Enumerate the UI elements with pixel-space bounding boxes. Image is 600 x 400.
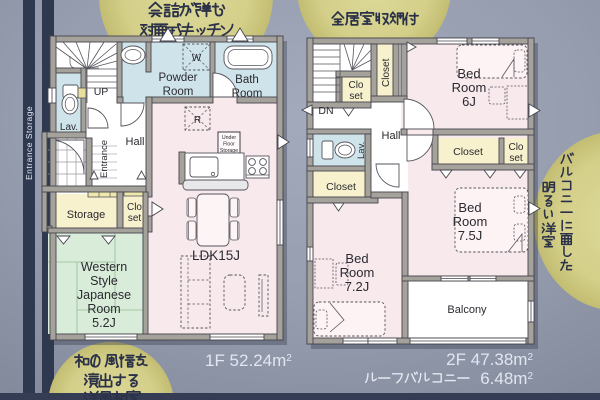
svg-text:2F 47.38m2: 2F 47.38m2: [446, 350, 533, 369]
svg-text:Closet: Closet: [381, 58, 392, 87]
svg-text:Room: Room: [87, 302, 120, 316]
svg-text:Hall: Hall: [126, 136, 145, 148]
svg-text:6J: 6J: [462, 94, 476, 109]
svg-text:Under: Under: [222, 135, 236, 141]
svg-text:Room: Room: [232, 88, 263, 100]
svg-text:Closet: Closet: [453, 146, 483, 158]
svg-text:W: W: [192, 53, 202, 64]
svg-text:Bed: Bed: [458, 200, 481, 215]
svg-text:Entrance: Entrance: [99, 140, 110, 178]
svg-text:7.2J: 7.2J: [345, 279, 370, 294]
svg-text:6.48m2: 6.48m2: [480, 369, 533, 388]
svg-text:UP: UP: [94, 86, 109, 98]
svg-text:Lav.: Lav.: [356, 142, 367, 159]
svg-text:Room: Room: [452, 80, 487, 95]
svg-text:Powder: Powder: [159, 72, 198, 84]
svg-text:Balcony: Balcony: [447, 304, 487, 316]
svg-text:Lav.: Lav.: [60, 122, 78, 133]
svg-text:Floor: Floor: [223, 142, 235, 148]
svg-text:Closet: Closet: [326, 181, 356, 193]
svg-text:7.5J: 7.5J: [458, 228, 483, 243]
svg-text:Entrance Storage: Entrance Storage: [24, 106, 34, 180]
svg-text:Clo: Clo: [348, 80, 363, 91]
svg-text:Room: Room: [163, 86, 194, 98]
svg-text:R: R: [194, 115, 201, 126]
svg-text:Western: Western: [81, 260, 127, 274]
svg-text:Style: Style: [90, 274, 118, 288]
svg-text:Japanese: Japanese: [77, 288, 131, 302]
svg-text:Storage: Storage: [67, 209, 106, 221]
svg-text:Bath: Bath: [235, 74, 259, 86]
svg-text:set: set: [128, 213, 142, 224]
svg-text:Room: Room: [340, 265, 375, 280]
svg-text:Bed: Bed: [457, 66, 480, 81]
svg-text:Bed: Bed: [345, 251, 368, 266]
svg-text:DN: DN: [318, 105, 333, 117]
svg-text:Hall: Hall: [382, 130, 401, 142]
svg-text:Clo: Clo: [508, 142, 523, 153]
svg-text:set: set: [509, 153, 523, 164]
svg-text:1F 52.24m2: 1F 52.24m2: [205, 351, 292, 370]
svg-text:set: set: [349, 91, 363, 102]
svg-text:5.2J: 5.2J: [92, 316, 116, 330]
svg-text:LDK15J: LDK15J: [192, 248, 240, 263]
svg-text:Clo: Clo: [127, 202, 142, 213]
svg-text:Room: Room: [453, 214, 488, 229]
